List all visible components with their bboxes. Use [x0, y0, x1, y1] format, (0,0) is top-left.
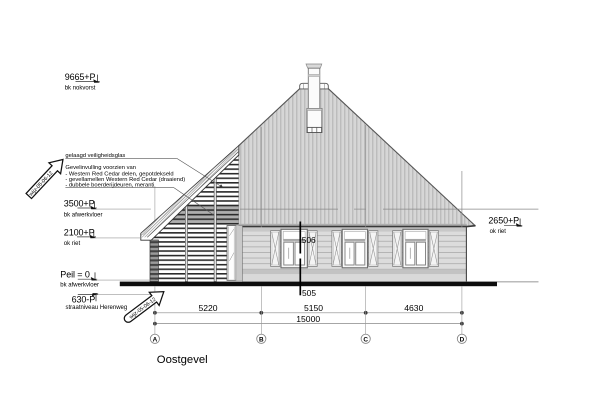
svg-text:bk afwerkvloer: bk afwerkvloer — [60, 283, 99, 289]
svg-text:bk nokvorst: bk nokvorst — [65, 85, 96, 91]
svg-text:5220: 5220 — [198, 303, 217, 313]
svg-text:C: C — [363, 336, 368, 343]
svg-text:Gevelinvulling voorzien van: Gevelinvulling voorzien van — [65, 165, 136, 171]
svg-text:B: B — [259, 336, 264, 343]
svg-text:5150: 5150 — [304, 303, 323, 313]
svg-text:2650+P: 2650+P — [488, 215, 519, 225]
svg-text:A: A — [153, 336, 158, 343]
svg-text:Oostgevel: Oostgevel — [157, 354, 208, 366]
svg-text:3500+P: 3500+P — [64, 199, 95, 209]
svg-text:ok riet: ok riet — [64, 241, 81, 247]
svg-text:506: 506 — [302, 235, 316, 245]
svg-text:505: 505 — [302, 288, 316, 298]
svg-text:630-P: 630-P — [72, 295, 96, 305]
svg-text:D: D — [460, 336, 465, 343]
svg-text:ok riet: ok riet — [490, 229, 507, 235]
svg-text:straatniveau Herenweg: straatniveau Herenweg — [66, 305, 128, 311]
svg-text:9665+P: 9665+P — [65, 72, 96, 82]
svg-text:4630: 4630 — [404, 303, 423, 313]
svg-text:bk afwerkvloer: bk afwerkvloer — [64, 212, 103, 218]
svg-text:Peil = 0: Peil = 0 — [60, 269, 90, 279]
svg-text:15000: 15000 — [296, 314, 320, 324]
